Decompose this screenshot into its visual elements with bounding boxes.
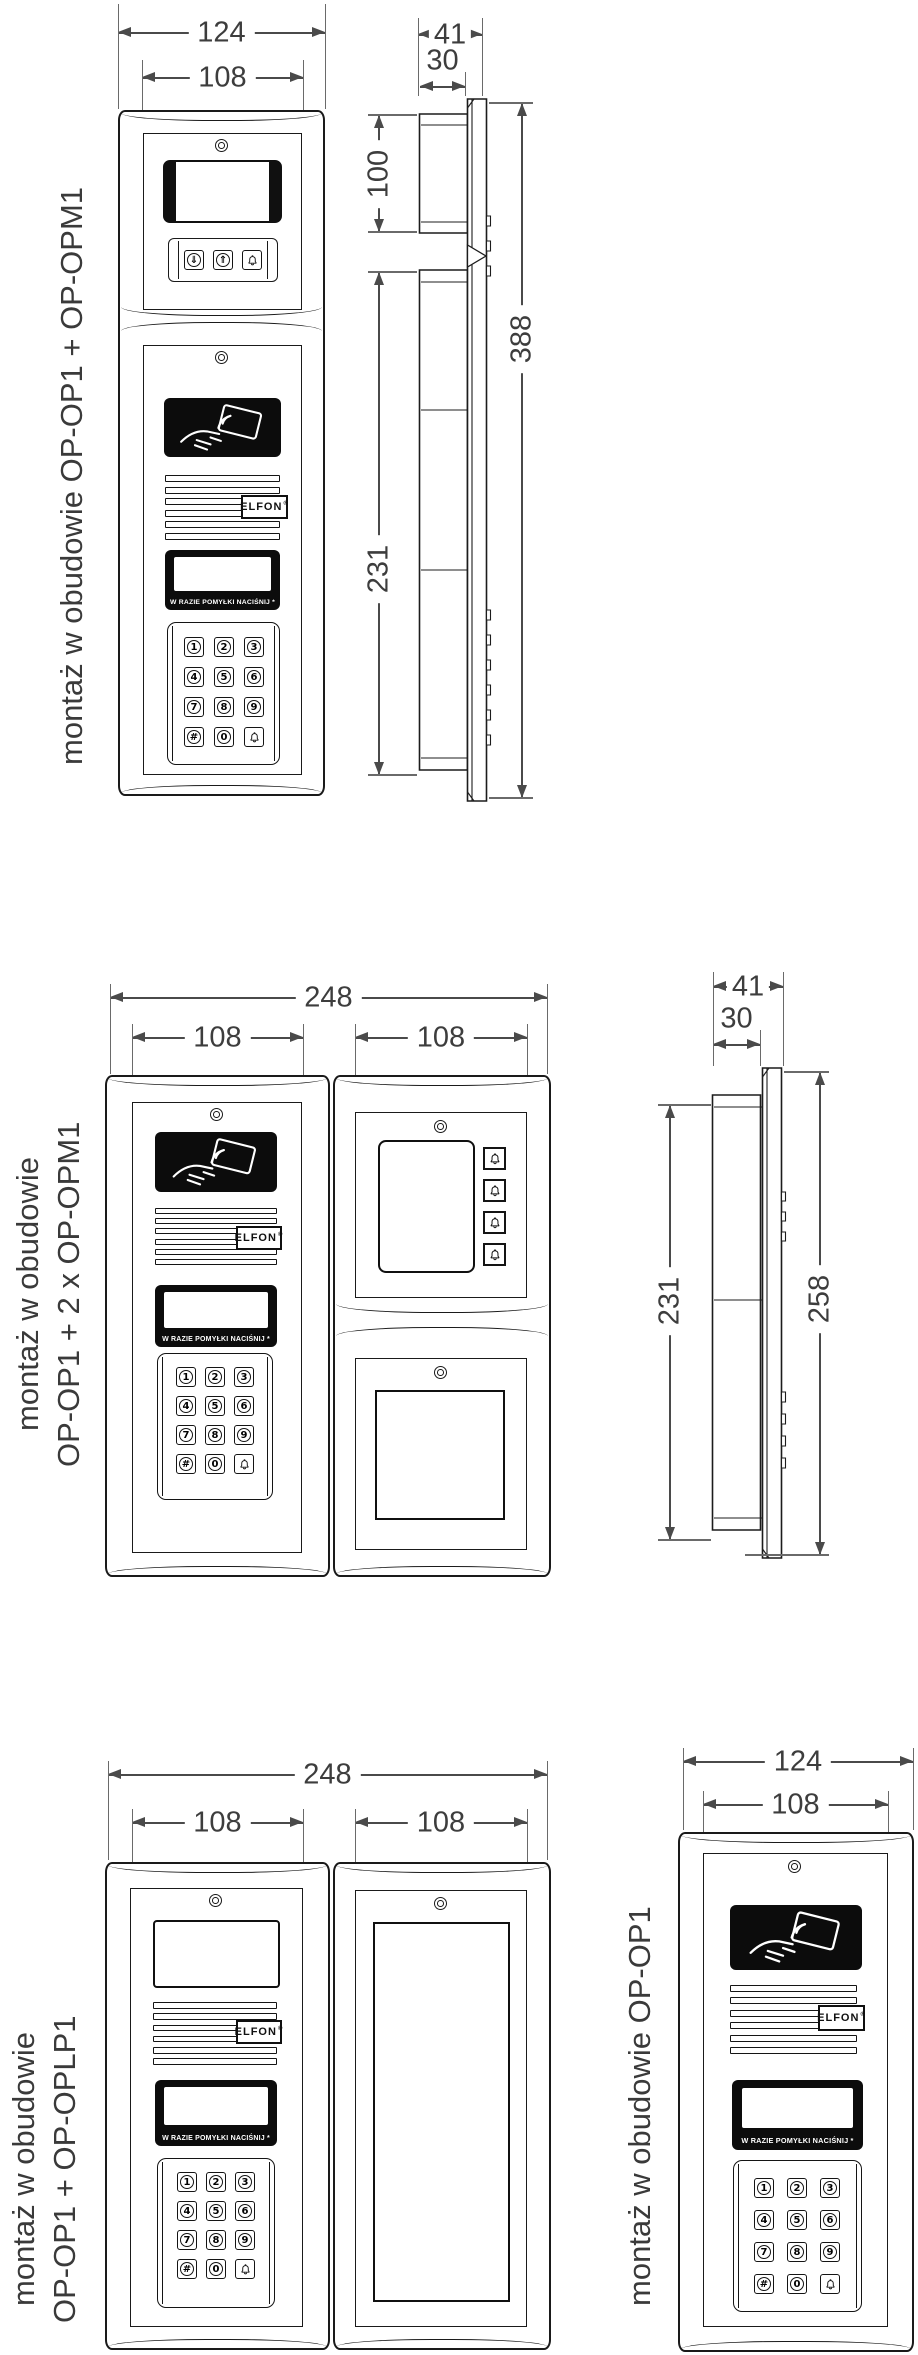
display-caption: W RAZIE POMYŁKI NACIŚNIJ * [155, 2135, 277, 2142]
key-label: # [184, 727, 204, 747]
brand-reg: ® [860, 2012, 865, 2018]
section2-label-line2: OP-OP1 + 2 x OP-OPM1 [49, 1088, 90, 1500]
dim-value: 248 [294, 1761, 360, 1790]
lcd-window [164, 1292, 268, 1328]
opm1-display [163, 160, 282, 223]
dim-value: 388 [508, 305, 537, 373]
screw-icon [215, 351, 228, 364]
dim-top-module-height: 100 [371, 115, 387, 232]
screw-icon [434, 1897, 447, 1910]
key-label: 6 [235, 2201, 255, 2221]
key-label: 9 [244, 697, 264, 717]
dim-value: 41 [727, 973, 769, 1002]
key-label: 7 [177, 2230, 197, 2250]
key-label: 2 [206, 2172, 226, 2192]
key-label: ⇓ [184, 250, 204, 270]
display-caption: W RAZIE POMYŁKI NACIŚNIJ * [165, 599, 280, 606]
card-reader-icon [164, 398, 281, 457]
screw-icon [788, 1860, 801, 1873]
dim-depth: 41 [418, 27, 482, 43]
lcd-window [164, 2087, 268, 2125]
card-reader-icon [730, 1905, 862, 1970]
dim-module-width: 108 [142, 70, 303, 86]
key-label: 6 [244, 667, 264, 687]
dim-left-module-width: 108 [132, 1815, 303, 1831]
key-label: 4 [177, 2201, 197, 2221]
key-label: 9 [820, 2242, 840, 2262]
dim-overall-width: 124 [118, 25, 325, 41]
bell-icon [234, 1454, 254, 1474]
dim-value: 108 [184, 1809, 250, 1838]
key-label: 8 [214, 697, 234, 717]
dim-value: 124 [188, 19, 254, 48]
dim-left-module-width: 108 [132, 1030, 303, 1046]
mounting-diagram-sheet: montaż w obudowie OP-OP1 + OP-OPM1 124 1… [0, 0, 918, 2355]
screw-icon [210, 1108, 223, 1121]
brand-reg: ® [278, 2026, 283, 2032]
key-label: 4 [754, 2210, 774, 2230]
section2-label-line1: montaż w obudowie [8, 1088, 49, 1500]
key-label: 2 [205, 1367, 225, 1387]
key-label: # [177, 2259, 197, 2279]
key-label: 9 [234, 1425, 254, 1445]
brand-logo: ELFON® [241, 495, 288, 519]
bell-icon [483, 1211, 506, 1234]
dim-value: 30 [426, 47, 458, 76]
brand-text: ELFON [817, 2012, 859, 2024]
opm1-list-window [378, 1140, 475, 1273]
bell-icon [483, 1147, 506, 1170]
bell-icon [244, 727, 264, 747]
screw-icon [434, 1366, 447, 1379]
key-label: 5 [206, 2201, 226, 2221]
key-label: 4 [184, 667, 204, 687]
dim-depth: 41 [713, 979, 783, 995]
dim-value: 100 [365, 139, 394, 207]
dim-box-depth: 30 [713, 1037, 760, 1053]
blank-window [375, 1390, 505, 1520]
key-label: # [754, 2274, 774, 2294]
key-label: # [176, 1454, 196, 1474]
lcd-window [742, 2088, 853, 2128]
dim-value: 108 [408, 1809, 474, 1838]
display-caption: W RAZIE POMYŁKI NACIŚNIJ * [732, 2136, 863, 2145]
key-label: 0 [205, 1454, 225, 1474]
key-label: 5 [787, 2210, 807, 2230]
dim-value: 258 [806, 1265, 835, 1333]
lcd-display: W RAZIE POMYŁKI NACIŚNIJ * [155, 1285, 277, 1347]
key-label: 6 [234, 1396, 254, 1416]
keypad-keys: 123456789#0 [754, 2178, 840, 2294]
brand-text: ELFON [235, 1232, 277, 1244]
brand-logo: ELFON® [236, 2020, 282, 2044]
dim-overall-width: 248 [108, 1767, 547, 1783]
dim-module-width: 108 [703, 1797, 888, 1813]
key-label: 0 [787, 2274, 807, 2294]
bell-icon [820, 2274, 840, 2294]
keypad-keys: 123456789#0 [184, 637, 264, 747]
bell-icon [483, 1179, 506, 1202]
side-view-s1 [412, 94, 492, 806]
card-reader-icon [155, 1132, 277, 1192]
dim-total-height: 388 [514, 103, 530, 798]
key-label: 8 [787, 2242, 807, 2262]
key-label: 1 [176, 1367, 196, 1387]
key-label: 3 [234, 1367, 254, 1387]
key-label: 1 [754, 2178, 774, 2198]
brand-reg: ® [283, 501, 288, 507]
dim-value: 108 [189, 64, 255, 93]
dim-box-depth: 30 [420, 79, 465, 95]
key-label: 1 [177, 2172, 197, 2192]
section3-label: montaż w obudowie OP-OP1 + OP-OPLP1 [4, 1988, 90, 2350]
dim-value: 124 [765, 1748, 831, 1777]
key-label: 5 [214, 667, 234, 687]
section2-label: montaż w obudowie OP-OP1 + 2 x OP-OPM1 [8, 1088, 94, 1500]
dim-panel-height: 258 [812, 1072, 828, 1555]
screw-icon [215, 139, 228, 152]
screw-icon [209, 1894, 222, 1907]
keypad-keys: 123456789#0 [177, 2172, 255, 2279]
display-caption: W RAZIE POMYŁKI NACIŚNIJ * [155, 1336, 277, 1343]
bell-button-column [483, 1147, 506, 1266]
key-label: 4 [176, 1396, 196, 1416]
key-label: 7 [176, 1425, 196, 1445]
key-label: 1 [184, 637, 204, 657]
dim-right-module-width: 108 [355, 1030, 527, 1046]
key-label: 7 [754, 2242, 774, 2262]
blank-list-window [373, 1922, 510, 2302]
camera-window [153, 1920, 280, 1988]
opm1-button-bar: ⇓⇑ [168, 238, 278, 282]
brand-text: ELFON [240, 501, 282, 513]
dim-value: 248 [295, 984, 361, 1013]
key-label: 7 [184, 697, 204, 717]
side-view-s2 [705, 1062, 790, 1562]
dim-box-height: 231 [662, 1105, 678, 1540]
bell-icon [483, 1243, 506, 1266]
lcd-display: W RAZIE POMYŁKI NACIŚNIJ * [732, 2080, 863, 2150]
dim-value: 231 [656, 1267, 685, 1335]
section3-label-line1: montaż w obudowie [4, 1988, 45, 2350]
dim-value: 108 [762, 1791, 828, 1820]
key-label: 3 [235, 2172, 255, 2192]
bell-icon [242, 250, 262, 270]
key-label: 9 [235, 2230, 255, 2250]
dim-bottom-module-height: 231 [371, 272, 387, 775]
key-label: 8 [206, 2230, 226, 2250]
brand-text: ELFON [235, 2026, 277, 2038]
bell-icon [235, 2259, 255, 2279]
section1-label: montaż w obudowie OP-OP1 + OP-OPM1 [52, 152, 98, 800]
key-label: 2 [214, 637, 234, 657]
brand-logo: ELFON® [236, 1226, 282, 1250]
screw-icon [434, 1120, 447, 1133]
key-label: 0 [214, 727, 234, 747]
brand-reg: ® [278, 1232, 283, 1238]
lcd-display: W RAZIE POMYŁKI NACIŚNIJ * [165, 550, 280, 610]
dim-value: 108 [184, 1024, 250, 1053]
key-label: 6 [820, 2210, 840, 2230]
dim-value: 108 [408, 1024, 474, 1053]
lcd-display: W RAZIE POMYŁKI NACIŚNIJ * [155, 2080, 277, 2146]
dim-overall-width: 124 [683, 1754, 913, 1770]
dim-value: 231 [365, 535, 394, 603]
dim-right-module-width: 108 [355, 1815, 527, 1831]
lcd-window [174, 557, 271, 591]
key-label: 0 [206, 2259, 226, 2279]
section4-label: montaż w obudowie OP-OP1 [620, 1857, 666, 2355]
key-label: 2 [787, 2178, 807, 2198]
key-label: 3 [820, 2178, 840, 2198]
dim-overall-width: 248 [110, 990, 547, 1006]
keypad-keys: 123456789#0 [176, 1367, 254, 1474]
key-label: 8 [205, 1425, 225, 1445]
dim-value: 30 [720, 1005, 752, 1034]
key-label: 5 [205, 1396, 225, 1416]
brand-logo: ELFON® [818, 2005, 865, 2031]
section3-label-line2: OP-OP1 + OP-OPLP1 [45, 1988, 86, 2350]
key-label: ⇑ [213, 250, 233, 270]
key-label: 3 [244, 637, 264, 657]
